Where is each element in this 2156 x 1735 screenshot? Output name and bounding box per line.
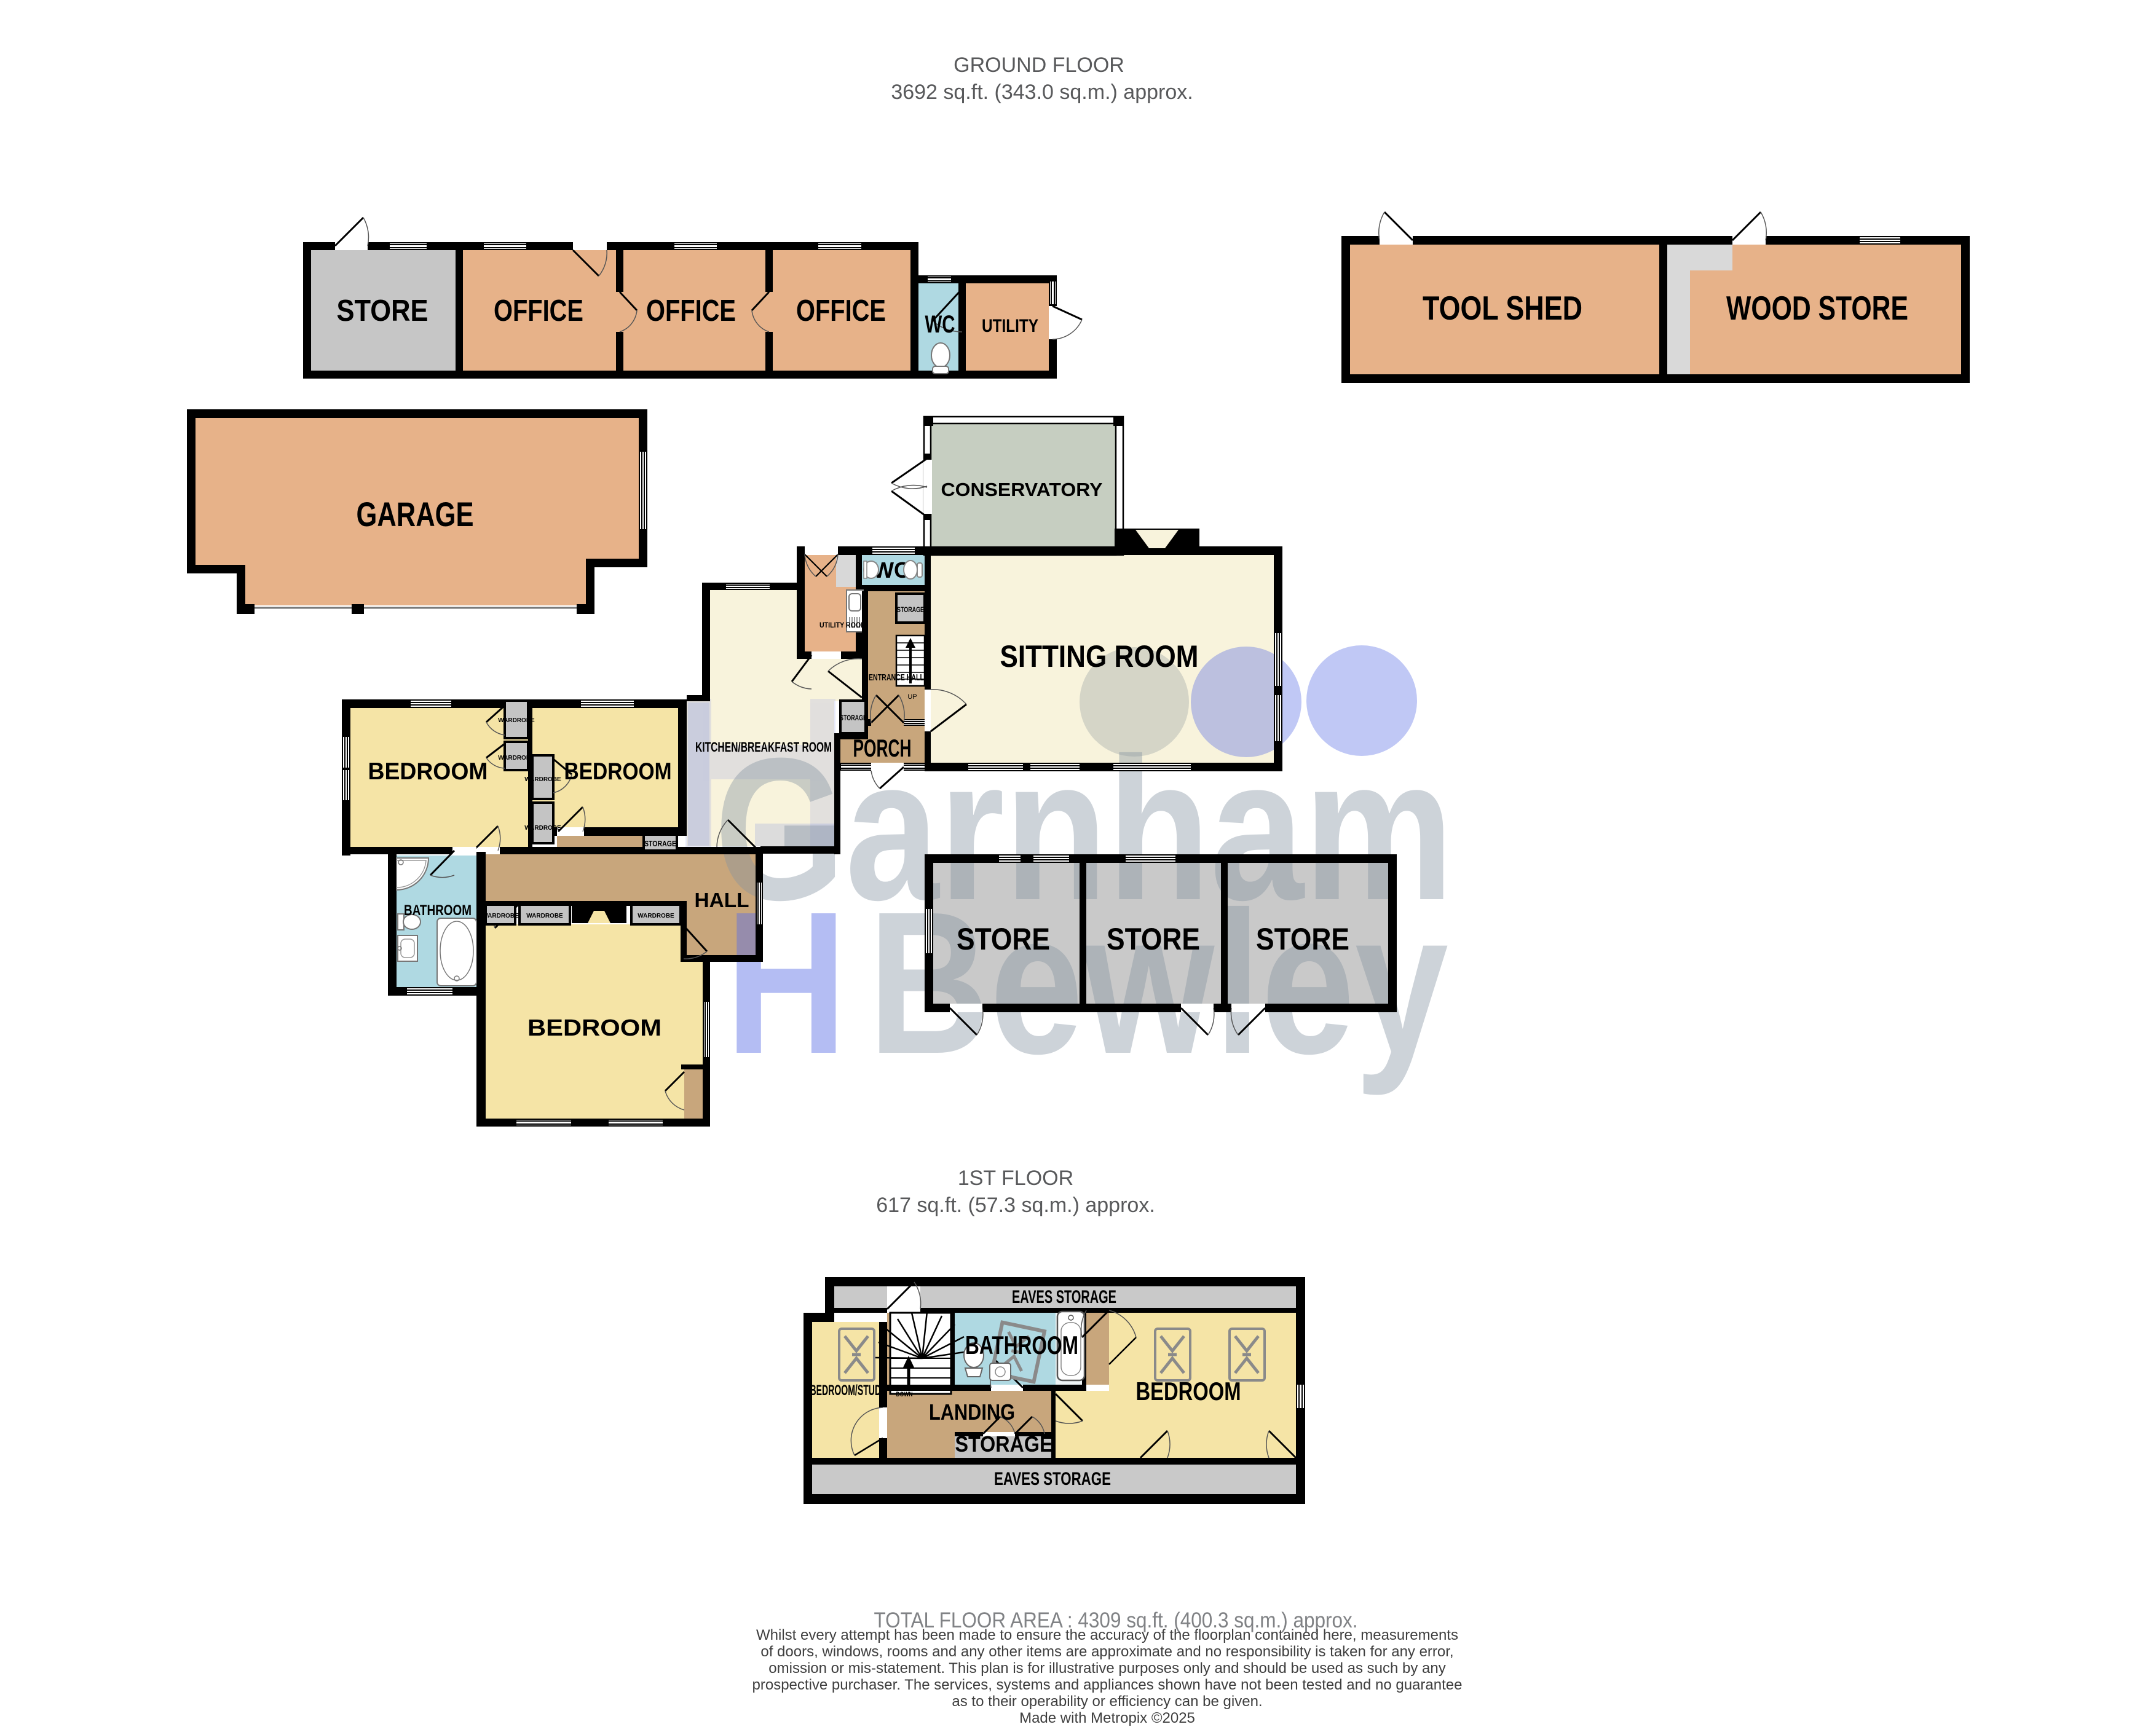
svg-text:UP: UP xyxy=(907,693,917,701)
svg-text:STORAGE: STORAGE xyxy=(840,714,867,722)
svg-text:SITTING ROOM: SITTING ROOM xyxy=(1000,639,1199,674)
svg-text:EAVES STORAGE: EAVES STORAGE xyxy=(994,1469,1111,1489)
svg-text:DOWN: DOWN xyxy=(896,1391,913,1398)
svg-text:BEDROOM: BEDROOM xyxy=(564,758,672,785)
svg-text:Whilst every attempt has been: Whilst every attempt has been made to en… xyxy=(756,1627,1458,1643)
svg-text:BATHROOM: BATHROOM xyxy=(965,1331,1078,1359)
svg-text:1ST FLOOR: 1ST FLOOR xyxy=(958,1167,1073,1190)
svg-text:UTILITY: UTILITY xyxy=(982,316,1038,336)
svg-text:Bewley: Bewley xyxy=(868,870,1450,1097)
svg-text:BEDROOM: BEDROOM xyxy=(1136,1377,1241,1406)
svg-text:OFFICE: OFFICE xyxy=(646,294,736,328)
svg-text:STORAGE: STORAGE xyxy=(955,1431,1053,1457)
svg-text:STORAGE: STORAGE xyxy=(644,839,676,848)
svg-text:KITCHEN/BREAKFAST ROOM: KITCHEN/BREAKFAST ROOM xyxy=(695,739,832,755)
svg-text:GROUND FLOOR: GROUND FLOOR xyxy=(954,53,1124,77)
svg-text:TOOL SHED: TOOL SHED xyxy=(1423,289,1582,327)
svg-text:STORAGE: STORAGE xyxy=(897,605,924,614)
svg-text:BEDROOM/STUDY: BEDROOM/STUDY xyxy=(810,1382,887,1399)
svg-text:as to their operability or eff: as to their operability or efficiency ca… xyxy=(952,1693,1262,1710)
svg-text:OFFICE: OFFICE xyxy=(796,294,886,328)
svg-text:STORE: STORE xyxy=(1256,922,1349,956)
svg-text:STORE: STORE xyxy=(337,294,428,328)
svg-text:BEDROOM: BEDROOM xyxy=(368,758,488,785)
svg-text:WOOD STORE: WOOD STORE xyxy=(1726,289,1908,327)
svg-text:prospective purchaser. The ser: prospective purchaser. The services, sys… xyxy=(752,1677,1463,1693)
svg-text:WARDROBE: WARDROBE xyxy=(638,913,674,919)
svg-text:GARAGE: GARAGE xyxy=(357,495,474,533)
svg-text:HALL: HALL xyxy=(695,889,749,911)
svg-text:STORE: STORE xyxy=(957,922,1050,956)
svg-text:UTILITY ROOM: UTILITY ROOM xyxy=(819,621,866,629)
svg-text:OFFICE: OFFICE xyxy=(494,294,583,328)
svg-text:BEDROOM: BEDROOM xyxy=(527,1015,661,1041)
svg-text:WARDROBE: WARDROBE xyxy=(482,913,519,919)
svg-text:PORCH: PORCH xyxy=(853,735,912,762)
svg-text:of doors, windows, rooms and a: of doors, windows, rooms and any other i… xyxy=(760,1643,1453,1660)
svg-text:EAVES STORAGE: EAVES STORAGE xyxy=(1012,1287,1116,1307)
svg-text:BATHROOM: BATHROOM xyxy=(404,902,472,919)
svg-text:3692 sq.ft. (343.0 sq.m.) appr: 3692 sq.ft. (343.0 sq.m.) approx. xyxy=(891,81,1193,104)
svg-text:WC: WC xyxy=(925,311,955,338)
svg-text:WARDROBE: WARDROBE xyxy=(526,913,563,919)
svg-text:ENTRANCE HALL: ENTRANCE HALL xyxy=(869,672,924,683)
svg-text:WARDROBE: WARDROBE xyxy=(524,776,561,783)
svg-text:STORE: STORE xyxy=(1107,922,1200,956)
svg-text:617 sq.ft. (57.3 sq.m.) approx: 617 sq.ft. (57.3 sq.m.) approx. xyxy=(876,1194,1155,1217)
svg-text:WARDROBE: WARDROBE xyxy=(524,825,561,832)
svg-text:CONSERVATORY: CONSERVATORY xyxy=(941,479,1103,500)
svg-text:LANDING: LANDING xyxy=(929,1399,1015,1425)
svg-text:Made with Metropix ©2025: Made with Metropix ©2025 xyxy=(1019,1710,1195,1726)
svg-text:omission or mis-statement. Thi: omission or mis-statement. This plan is … xyxy=(768,1660,1445,1677)
